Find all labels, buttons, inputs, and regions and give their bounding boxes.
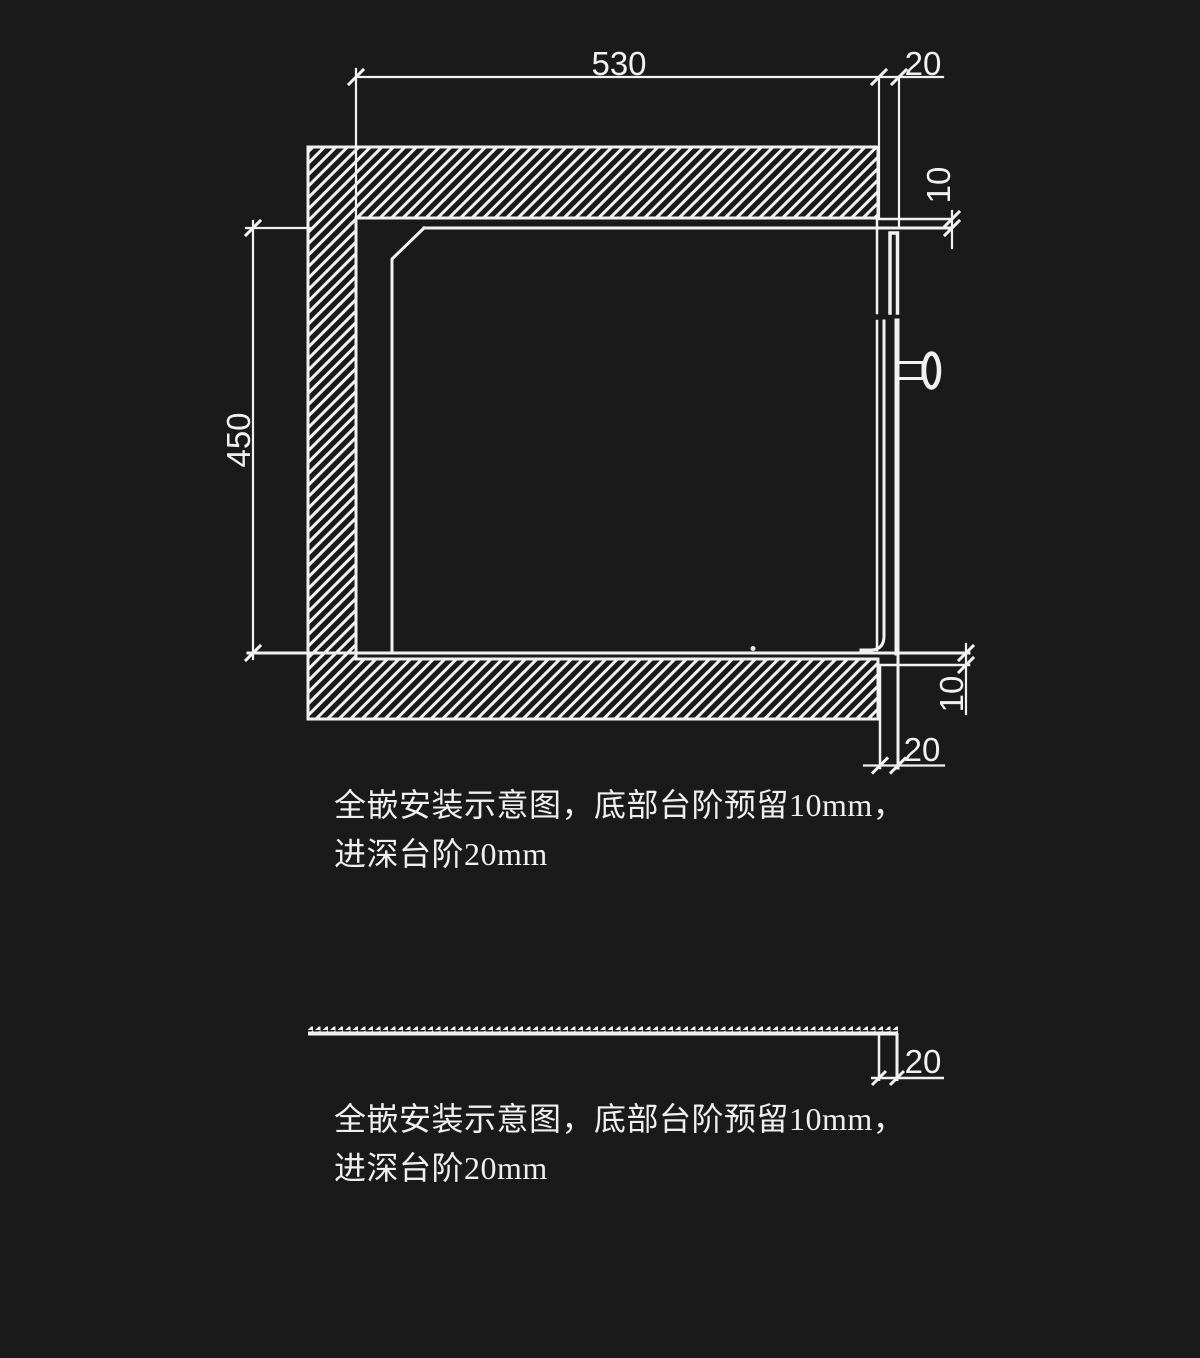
caption-block-main: 全嵌安装示意图，底部台阶预留10mm， 进深台阶20mm: [334, 781, 905, 879]
dim-top-step-label: 20: [905, 45, 942, 82]
dim-top-gap-label: 10: [920, 167, 957, 204]
dim-height-label: 450: [220, 412, 257, 467]
caption-main-line1: 全嵌安装示意图，底部台阶预留10mm，: [334, 781, 905, 830]
caption-lower-line2: 进深台阶20mm: [334, 1144, 905, 1193]
lower-step-diagram: 20: [308, 1027, 944, 1086]
caption-block-lower: 全嵌安装示意图，底部台阶预留10mm， 进深台阶20mm: [334, 1095, 905, 1193]
door-handle-knob: [898, 354, 939, 388]
dim-bottom-step-label: 20: [904, 731, 941, 768]
floor-dot: [751, 646, 756, 651]
dim-lower-step-label: 20: [905, 1043, 942, 1080]
dim-width-label: 530: [591, 45, 646, 82]
caption-lower-line1: 全嵌安装示意图，底部台阶预留10mm，: [334, 1095, 905, 1144]
countertop-serrated-surface: [308, 1027, 898, 1033]
caption-main-line2: 进深台阶20mm: [334, 830, 905, 879]
dim-bottom-gap-label: 10: [933, 676, 970, 713]
